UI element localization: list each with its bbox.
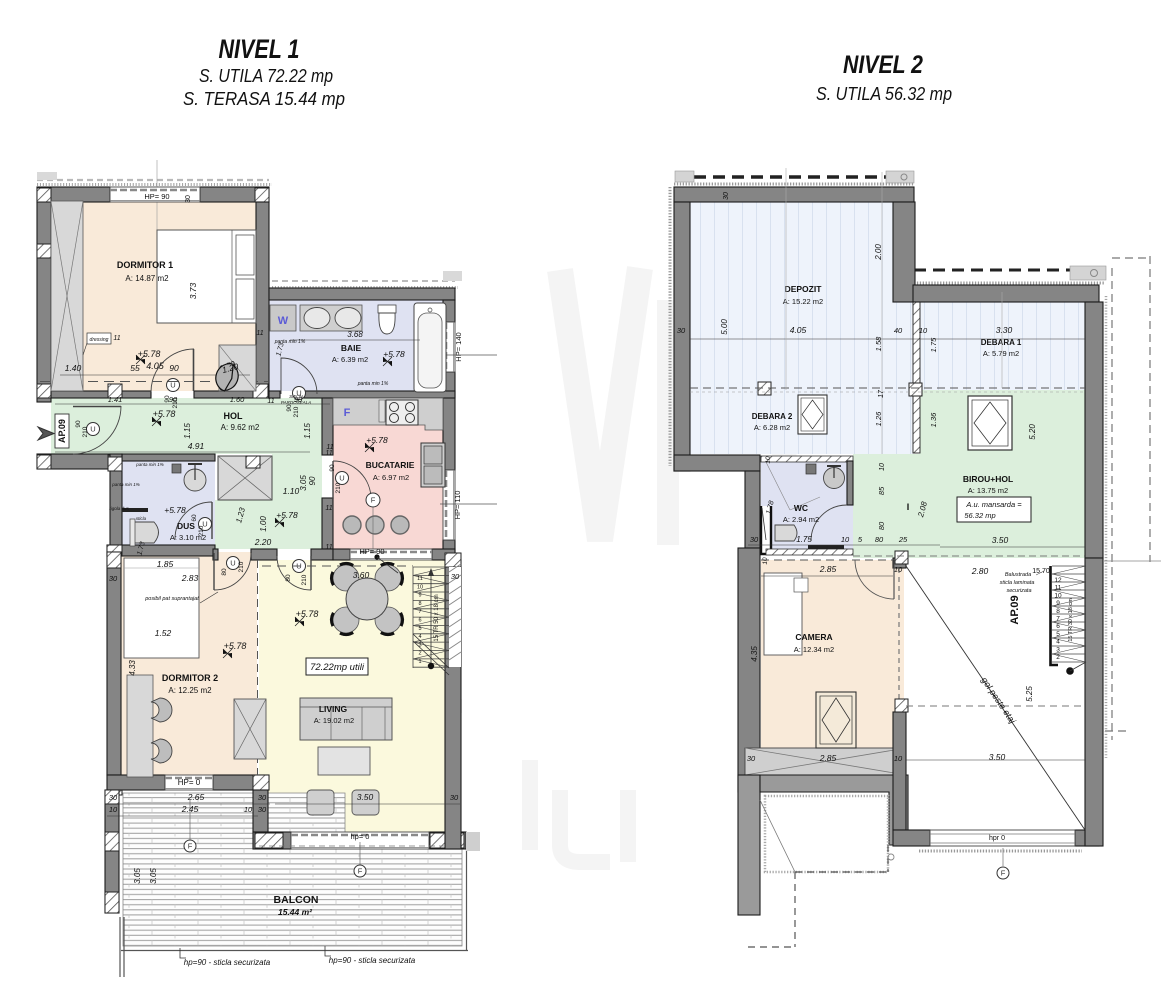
svg-text:90: 90	[329, 464, 336, 472]
svg-text:2.80: 2.80	[971, 566, 989, 576]
svg-text:10: 10	[894, 754, 903, 763]
svg-text:hp=90 - sticla securizata: hp=90 - sticla securizata	[184, 958, 271, 967]
svg-text:1.52: 1.52	[155, 628, 172, 638]
svg-text:hp=90 - sticla securizata: hp=90 - sticla securizata	[329, 956, 416, 965]
svg-text:11: 11	[325, 450, 332, 457]
svg-text:1.10: 1.10	[283, 486, 300, 496]
svg-text:30: 30	[185, 195, 192, 203]
svg-text:1: 1	[418, 659, 421, 665]
svg-text:CAMERA: CAMERA	[795, 632, 832, 642]
svg-text:+5.78: +5.78	[296, 609, 319, 619]
svg-text:3.30: 3.30	[996, 325, 1013, 335]
svg-text:BALCON: BALCON	[274, 894, 319, 906]
svg-text:HOL: HOL	[224, 411, 244, 421]
svg-text:210: 210	[301, 574, 308, 585]
svg-text:10: 10	[244, 805, 253, 814]
svg-text:F: F	[371, 496, 376, 505]
svg-text:BIROU+HOL: BIROU+HOL	[963, 474, 1013, 484]
svg-text:4: 4	[418, 634, 421, 640]
svg-text:DORMITOR 1: DORMITOR 1	[117, 260, 173, 270]
svg-text:9: 9	[1056, 600, 1060, 607]
svg-text:DEBARA 1: DEBARA 1	[981, 338, 1022, 347]
svg-text:90: 90	[75, 420, 82, 428]
svg-text:56.32 mp: 56.32 mp	[964, 511, 995, 520]
svg-text:15.44 m²: 15.44 m²	[278, 907, 313, 917]
svg-text:10: 10	[417, 584, 423, 590]
svg-text:10: 10	[1054, 592, 1062, 599]
svg-text:4.35: 4.35	[750, 646, 759, 662]
svg-text:1.00: 1.00	[259, 516, 268, 532]
svg-text:U: U	[230, 559, 235, 568]
svg-text:4.05: 4.05	[790, 325, 807, 335]
svg-text:HP= 90: HP= 90	[144, 192, 169, 201]
svg-text:+5.78: +5.78	[276, 510, 298, 520]
svg-text:HP= 0: HP= 0	[178, 778, 201, 787]
svg-text:17: 17	[878, 389, 885, 398]
svg-text:2.00: 2.00	[874, 244, 883, 261]
svg-text:72.22mp utili: 72.22mp utili	[310, 662, 365, 673]
svg-text:5: 5	[418, 626, 421, 632]
svg-text:sticla: sticla	[136, 516, 147, 521]
svg-text:30: 30	[258, 793, 267, 802]
svg-text:A: 13.75 m2: A: 13.75 m2	[968, 486, 1008, 495]
svg-text:10: 10	[879, 463, 886, 471]
svg-text:+5.78: +5.78	[153, 409, 176, 419]
svg-text:15.70: 15.70	[1032, 568, 1050, 575]
svg-text:A: 6.97 m2: A: 6.97 m2	[373, 473, 409, 482]
svg-text:9: 9	[418, 593, 421, 599]
svg-text:4.05: 4.05	[146, 361, 165, 371]
svg-text:3.50: 3.50	[992, 535, 1009, 545]
svg-text:W: W	[278, 315, 289, 327]
svg-text:1.58: 1.58	[874, 336, 883, 351]
svg-text:90: 90	[308, 476, 317, 485]
svg-text:2.20: 2.20	[254, 537, 272, 547]
svg-text:panta min 1%: panta min 1%	[135, 462, 164, 467]
svg-text:90: 90	[286, 404, 293, 412]
svg-text:3.05: 3.05	[149, 868, 158, 884]
svg-text:1.40: 1.40	[65, 363, 82, 373]
svg-text:5: 5	[1056, 631, 1060, 638]
svg-text:A: 3.10 m2: A: 3.10 m2	[170, 533, 206, 542]
svg-text:panta min 1%: panta min 1%	[357, 381, 389, 387]
svg-text:3: 3	[418, 642, 421, 648]
svg-text:DORMITOR 2: DORMITOR 2	[162, 673, 218, 683]
svg-text:30: 30	[109, 574, 118, 583]
svg-text:A: 6.39 m2: A: 6.39 m2	[332, 355, 368, 364]
svg-text:F: F	[344, 407, 351, 419]
svg-text:S. UTILA 72.22 mp: S. UTILA 72.22 mp	[199, 66, 333, 86]
svg-text:11: 11	[267, 398, 274, 405]
svg-text:F: F	[358, 867, 363, 876]
svg-text:2.85: 2.85	[819, 753, 837, 763]
svg-text:10: 10	[841, 535, 850, 544]
svg-text:210: 210	[82, 426, 89, 437]
svg-text:2.83: 2.83	[181, 573, 199, 583]
svg-text:3: 3	[1056, 646, 1060, 653]
svg-text:90: 90	[169, 395, 178, 404]
svg-text:1.26: 1.26	[874, 411, 883, 426]
svg-text:F: F	[1001, 869, 1006, 878]
svg-text:11: 11	[256, 330, 263, 337]
svg-text:30: 30	[451, 572, 460, 581]
svg-text:Balustrada: Balustrada	[1005, 572, 1031, 578]
svg-text:A: 15.22 m2: A: 15.22 m2	[783, 297, 823, 306]
svg-text:A: 19.02 m2: A: 19.02 m2	[314, 716, 354, 725]
svg-text:8: 8	[418, 601, 421, 607]
svg-text:securizata: securizata	[1006, 588, 1031, 594]
svg-text:30: 30	[258, 805, 267, 814]
svg-text:DEPOZIT: DEPOZIT	[785, 284, 823, 294]
svg-text:10: 10	[109, 805, 118, 814]
svg-text:30: 30	[723, 192, 730, 200]
svg-text:A: 2.94 m2: A: 2.94 m2	[783, 515, 819, 524]
svg-text:PARDOSEALA: PARDOSEALA	[281, 400, 311, 405]
svg-text:5.25: 5.25	[1025, 686, 1034, 702]
svg-text:10: 10	[894, 565, 903, 574]
svg-text:80: 80	[877, 521, 886, 530]
svg-text:3.60: 3.60	[353, 570, 370, 580]
svg-text:5.00: 5.00	[720, 319, 729, 335]
svg-text:80: 80	[875, 535, 884, 544]
svg-text:A: 9.62 m2: A: 9.62 m2	[221, 423, 260, 432]
svg-text:hpr 0: hpr 0	[989, 835, 1005, 842]
svg-text:HP= 140: HP= 140	[454, 332, 463, 361]
svg-text:3.50: 3.50	[989, 752, 1006, 762]
svg-text:2.45: 2.45	[181, 804, 199, 814]
svg-text:hp= 0: hp= 0	[351, 832, 370, 841]
svg-text:F: F	[188, 842, 193, 851]
svg-text:BAIE: BAIE	[341, 343, 362, 353]
svg-text:15 TR 50 x 18 cm: 15 TR 50 x 18 cm	[434, 594, 440, 641]
svg-text:BUCATARIE: BUCATARIE	[366, 460, 415, 470]
svg-text:AP.09: AP.09	[1009, 595, 1021, 624]
svg-text:25: 25	[898, 535, 908, 544]
svg-text:11: 11	[113, 335, 120, 342]
svg-text:1.85: 1.85	[157, 559, 174, 569]
svg-text:2.85: 2.85	[819, 564, 837, 574]
svg-text:A: 12.25 m2: A: 12.25 m2	[168, 686, 212, 695]
svg-text:80: 80	[221, 568, 228, 576]
svg-text:1.36: 1.36	[929, 412, 938, 427]
svg-text:NIVEL 1: NIVEL 1	[219, 34, 300, 64]
svg-text:dressing: dressing	[90, 337, 109, 343]
svg-text:3.05: 3.05	[299, 475, 308, 491]
svg-text:1.75: 1.75	[796, 535, 812, 544]
svg-text:40: 40	[894, 326, 903, 335]
svg-text:30: 30	[750, 535, 759, 544]
svg-text:210: 210	[293, 406, 300, 417]
svg-text:8: 8	[1056, 608, 1060, 615]
svg-text:85: 85	[877, 486, 886, 495]
svg-text:rigola dus: rigola dus	[109, 506, 129, 511]
svg-text:panta min 1%: panta min 1%	[111, 482, 140, 487]
svg-text:1.15: 1.15	[183, 423, 192, 439]
svg-text:AP.09: AP.09	[57, 419, 67, 443]
svg-text:7: 7	[418, 609, 421, 615]
svg-text:7: 7	[1056, 616, 1060, 623]
svg-text:55: 55	[130, 363, 140, 373]
svg-text:A.u. mansarda =: A.u. mansarda =	[965, 500, 1022, 509]
svg-text:15 TR 30 x 18 cm: 15 TR 30 x 18 cm	[1068, 598, 1074, 642]
svg-text:10: 10	[762, 557, 769, 565]
svg-text:4: 4	[1056, 639, 1060, 646]
svg-text:80: 80	[285, 574, 292, 582]
svg-text:1.75: 1.75	[929, 337, 938, 352]
svg-text:10: 10	[919, 326, 928, 335]
svg-text:+5.78: +5.78	[138, 349, 161, 359]
svg-text:210: 210	[335, 482, 342, 493]
svg-text:3.05: 3.05	[133, 868, 142, 884]
svg-text:1.15: 1.15	[303, 423, 312, 439]
svg-text:2.65: 2.65	[187, 792, 205, 802]
svg-text:A: 5.79 m2: A: 5.79 m2	[983, 349, 1019, 358]
svg-text:11: 11	[325, 544, 332, 551]
svg-text:A: 6.28 m2: A: 6.28 m2	[754, 423, 790, 432]
svg-text:HP= 110: HP= 110	[453, 491, 462, 520]
svg-text:NIVEL 2: NIVEL 2	[843, 51, 923, 79]
svg-text:6: 6	[418, 618, 421, 624]
svg-text:30: 30	[109, 793, 118, 802]
svg-text:sticla laminata: sticla laminata	[1000, 580, 1035, 586]
svg-text:I: I	[907, 502, 910, 512]
svg-text:11: 11	[1055, 585, 1062, 592]
svg-text:S. UTILA 56.32 mp: S. UTILA 56.32 mp	[816, 84, 952, 104]
svg-text:4.91: 4.91	[188, 441, 205, 451]
svg-text:11: 11	[325, 505, 332, 512]
svg-text:1.41: 1.41	[108, 395, 123, 404]
svg-text:SIFON: SIFON	[289, 394, 304, 399]
svg-text:5.20: 5.20	[1028, 424, 1037, 440]
svg-text:30: 30	[677, 326, 686, 335]
svg-text:posibil pat suprantajat: posibil pat suprantajat	[144, 596, 199, 602]
svg-text:+5.78: +5.78	[366, 435, 388, 445]
svg-text:10: 10	[765, 456, 772, 464]
svg-text:DUS: DUS	[177, 521, 195, 531]
svg-text:+5.78: +5.78	[224, 641, 247, 651]
svg-text:2: 2	[418, 651, 421, 657]
svg-text:6: 6	[1056, 623, 1060, 630]
svg-text:12: 12	[1054, 577, 1062, 584]
svg-text:HP= 90: HP= 90	[359, 547, 384, 556]
svg-text:+5.78: +5.78	[383, 349, 405, 359]
svg-text:S. TERASA 15.44 mp: S. TERASA 15.44 mp	[183, 89, 345, 109]
svg-text:DEBARA 2: DEBARA 2	[752, 412, 793, 421]
svg-text:+5.78: +5.78	[164, 505, 186, 515]
svg-text:90: 90	[169, 363, 179, 373]
svg-text:3.50: 3.50	[357, 792, 374, 802]
svg-text:210: 210	[238, 561, 245, 572]
svg-text:A: 12.34 m2: A: 12.34 m2	[794, 645, 834, 654]
svg-text:30: 30	[747, 754, 756, 763]
svg-text:3.68: 3.68	[347, 330, 363, 339]
svg-text:LIVING: LIVING	[319, 704, 348, 714]
svg-text:A: 14.87 m2: A: 14.87 m2	[125, 274, 169, 283]
svg-text:U: U	[90, 425, 95, 434]
svg-text:U: U	[339, 474, 344, 483]
svg-text:11: 11	[417, 576, 423, 582]
svg-text:4.33: 4.33	[128, 660, 137, 676]
svg-text:1.60: 1.60	[230, 395, 245, 404]
svg-text:3.73: 3.73	[188, 282, 198, 299]
svg-text:WC: WC	[794, 503, 808, 513]
svg-text:2: 2	[1056, 654, 1060, 661]
svg-text:30: 30	[450, 793, 459, 802]
